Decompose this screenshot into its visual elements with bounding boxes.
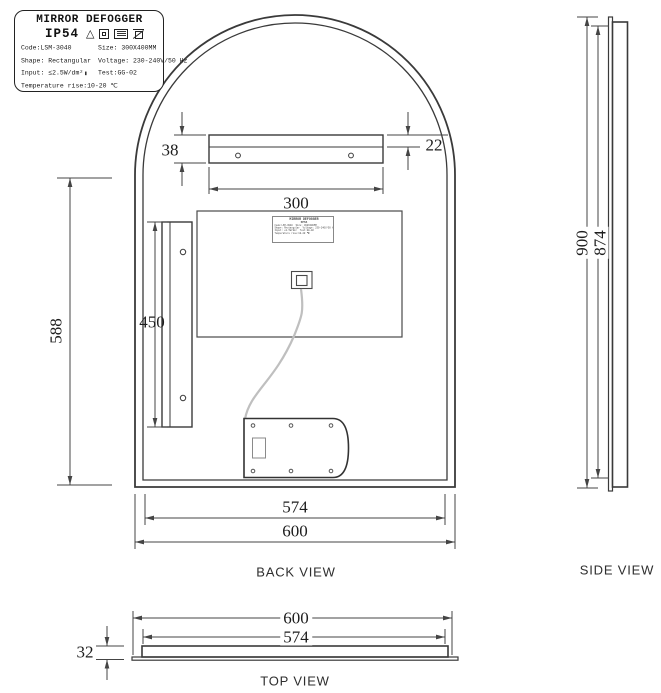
dim-300-label: 300: [283, 195, 309, 212]
dim-600-back-label: 600: [282, 523, 308, 540]
drawing-linework: [0, 0, 661, 693]
dim-900-label: 900: [574, 227, 591, 259]
side-view-caption: SIDE VIEW: [580, 563, 654, 578]
back-view-caption: BACK VIEW: [256, 565, 335, 580]
mirror-back-outline: [135, 15, 455, 487]
dim-32-label: 32: [77, 644, 94, 661]
top-view-caption: TOP VIEW: [260, 674, 330, 689]
spec-input: Input: ≤2.5W/dm²: [21, 69, 76, 76]
cable-connector: [292, 272, 313, 289]
weee-bin-icon: [133, 28, 144, 40]
dim-22-label: 22: [426, 137, 443, 154]
dim-574-top-label: 574: [280, 629, 312, 646]
bracket-screw-hole: [236, 153, 241, 158]
rohs-icon: [114, 29, 128, 39]
class-ii-mini-icon: [85, 71, 86, 75]
mirror-frame-outer: [135, 15, 455, 487]
dim-874-label: 874: [592, 227, 609, 259]
dim-32-lines: [96, 626, 124, 680]
side-view-profile: [609, 17, 628, 491]
spec-temperature: Temperature rise:10-20 ℃: [21, 82, 120, 89]
side-bracket-bar: [162, 222, 192, 427]
side-bracket-hole: [180, 249, 185, 254]
class-ii-insulation-icon: [99, 29, 109, 39]
power-cable: [245, 289, 302, 419]
dim-588-label: 588: [48, 318, 65, 344]
dim-38-label: 38: [162, 142, 179, 159]
dim-574-back-label: 574: [282, 499, 308, 516]
dim-450-label: 450: [139, 314, 165, 331]
top-glass-edge: [132, 657, 458, 660]
spec-label-box: MIRROR DEFOGGER IP54 △ Code:LSM-3040 Siz…: [14, 10, 164, 92]
spec-shape: Shape: Rectangular: [21, 57, 76, 64]
top-frame-body: [142, 646, 448, 657]
mini-label-temperature: Temperature rise:10-20 ℃: [274, 232, 309, 235]
spec-title: MIRROR DEFOGGER: [21, 14, 158, 26]
mirror-frame-inner: [143, 23, 447, 480]
spec-code: Code:LSM-3040: [21, 44, 76, 51]
side-bracket-hole: [180, 395, 185, 400]
spec-test: Test:GG-02: [98, 69, 141, 76]
pad-mini-label: MIRROR DEFOGGER IP54 Code:LSM-3040 Size:…: [272, 216, 334, 243]
vertical-side-bracket: [162, 222, 192, 427]
technical-drawing-sheet: 38 22 300 450 588 574 600 900 874 600 57…: [0, 0, 661, 693]
bracket-bar: [209, 135, 383, 163]
connector-inner: [297, 276, 308, 286]
dim-38-lines: [174, 112, 206, 186]
ip-rating: IP54: [45, 27, 79, 41]
side-frame-body: [613, 22, 628, 487]
dim-600-top-label: 600: [280, 610, 312, 627]
dim-300-lines: [209, 167, 383, 194]
top-hanging-bracket: [209, 135, 383, 163]
bracket-screw-hole: [349, 153, 354, 158]
junction-box: [244, 419, 349, 478]
warning-triangle-icon: △: [86, 28, 94, 39]
junction-box-body: [244, 419, 349, 478]
spec-voltage: Voltage: 230-240V/50 Hz: [98, 57, 141, 64]
spec-size: Size: 300X400MM: [98, 44, 141, 51]
top-view-profile: [132, 646, 458, 660]
